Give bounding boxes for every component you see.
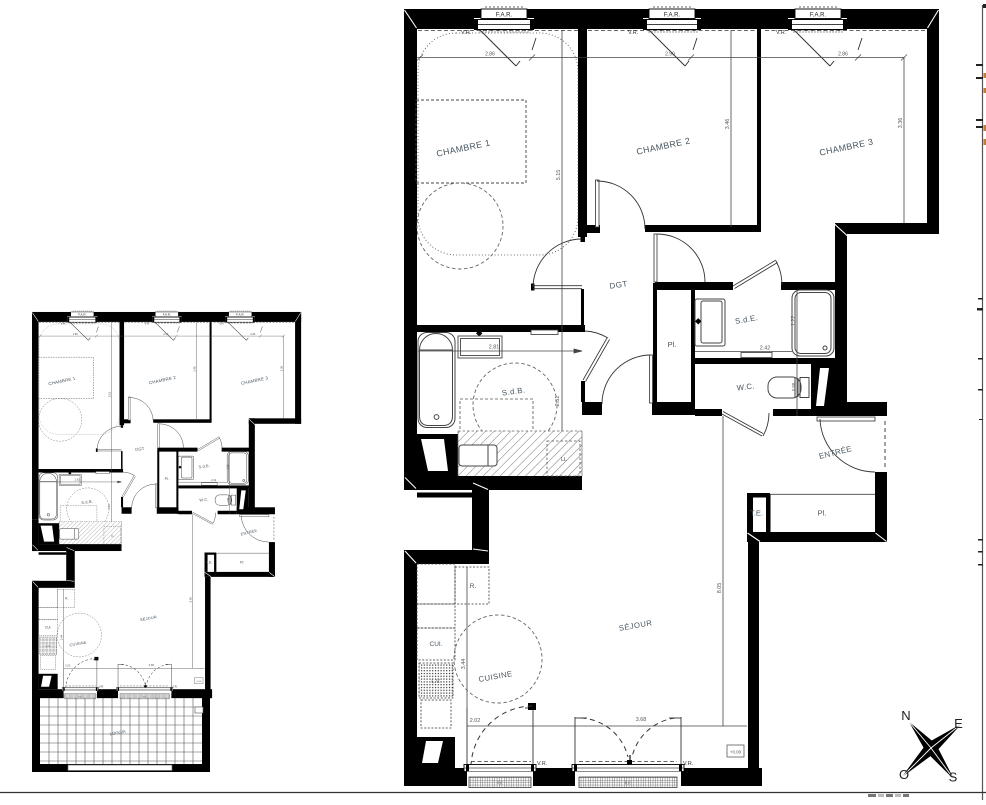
svg-text:S: S bbox=[949, 770, 958, 785]
svg-text:N: N bbox=[901, 708, 910, 723]
svg-text:E: E bbox=[954, 716, 963, 731]
svg-text:O: O bbox=[899, 767, 909, 782]
